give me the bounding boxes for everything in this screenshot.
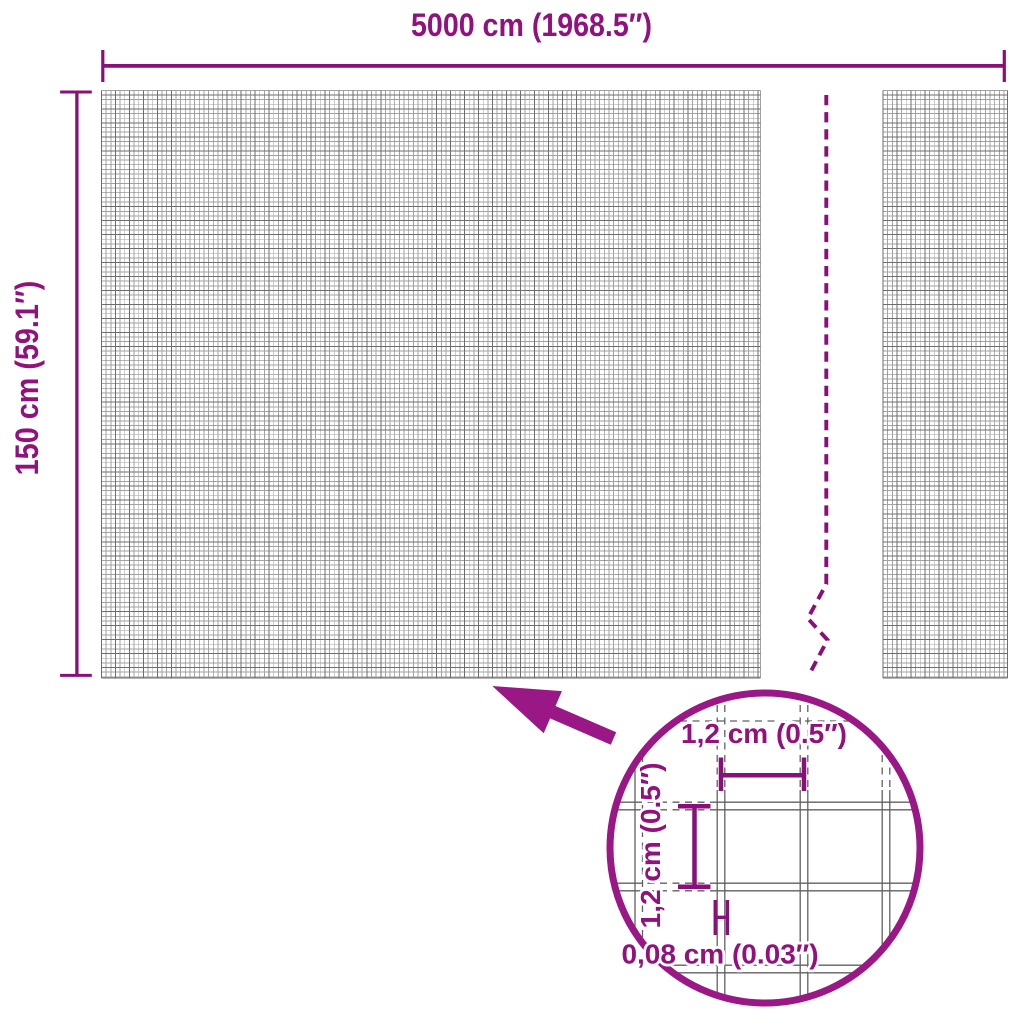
svg-text:1,2 cm (0.5″): 1,2 cm (0.5″) — [681, 718, 847, 749]
svg-text:0,08 cm (0.03″): 0,08 cm (0.03″) — [621, 939, 818, 970]
svg-text:150 cm (59.1″): 150 cm (59.1″) — [9, 281, 46, 476]
svg-text:5000 cm (1968.5″): 5000 cm (1968.5″) — [411, 8, 652, 44]
svg-text:1,2 cm (0.5″): 1,2 cm (0.5″) — [635, 762, 666, 928]
